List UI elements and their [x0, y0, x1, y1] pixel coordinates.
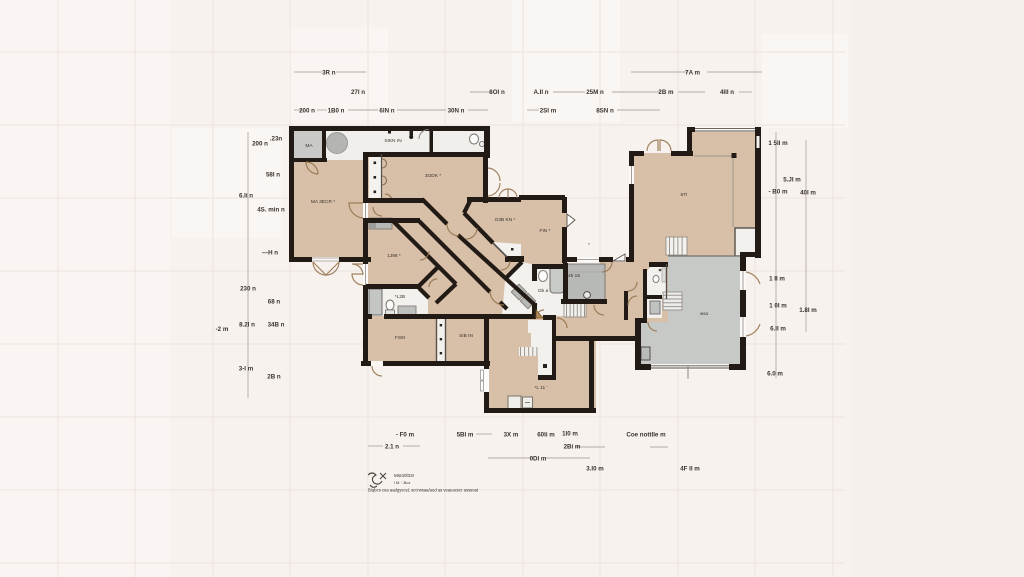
svg-text:2Bi m: 2Bi m	[564, 444, 581, 451]
svg-text:3.I0 m: 3.I0 m	[586, 466, 604, 473]
svg-text:2SI m: 2SI m	[540, 108, 557, 115]
svg-text:- B0 m: - B0 m	[769, 189, 788, 196]
svg-text:8OI n: 8OI n	[489, 89, 505, 96]
svg-text:68 n: 68 n	[268, 299, 281, 306]
svg-text:6.II m: 6.II m	[770, 326, 786, 333]
svg-text:45 15: 45 15	[568, 273, 580, 279]
svg-text:6.0 m: 6.0 m	[767, 371, 783, 378]
svg-text:SIKN IN: SIKN IN	[384, 138, 402, 144]
svg-text:A.II n: A.II n	[533, 89, 548, 96]
svg-text:MA: MA	[305, 143, 313, 149]
svg-text:2B n: 2B n	[267, 374, 281, 381]
svg-text:3R n: 3R n	[322, 70, 336, 77]
svg-text:8.2I n: 8.2I n	[239, 322, 255, 329]
svg-text:MA 3ECR *: MA 3ECR *	[311, 199, 335, 205]
svg-text:BIqbcs coa aadgyvcs1 sccrwsaa/: BIqbcs coa aadgyvcs1 sccrwsaa/aod as vea…	[368, 488, 479, 493]
svg-text:SIB IN: SIB IN	[459, 333, 473, 339]
svg-text:Mst40l33I: Mst40l33I	[394, 473, 414, 478]
svg-text:FS9I: FS9I	[395, 335, 405, 341]
svg-text:40I m: 40I m	[800, 190, 816, 197]
svg-text:6IN n: 6IN n	[379, 108, 394, 115]
svg-text:5.JI m: 5.JI m	[783, 177, 801, 184]
svg-text:*L2B: *L2B	[395, 294, 405, 300]
svg-text:1I0 m: 1I0 m	[562, 431, 578, 438]
svg-text:1 5II m: 1 5II m	[768, 140, 788, 147]
svg-text:1J98 *: 1J98 *	[387, 253, 401, 259]
svg-text:30N n: 30N n	[448, 108, 465, 115]
svg-text:0DI m: 0DI m	[530, 456, 547, 463]
svg-text:Coe nottIIe m: Coe nottIIe m	[626, 432, 666, 439]
svg-text:8SN n: 8SN n	[596, 108, 614, 115]
svg-text:Ob a: Ob a	[538, 288, 549, 294]
svg-text:6TI: 6TI	[681, 192, 688, 198]
svg-text:27I n: 27I n	[351, 89, 365, 96]
svg-text:25M n: 25M n	[586, 89, 604, 96]
svg-text:3ODK *: 3ODK *	[425, 173, 441, 179]
svg-text:O3B KN *: O3B KN *	[495, 217, 516, 223]
svg-text:60Ii m: 60Ii m	[537, 432, 555, 439]
svg-text:*: *	[588, 242, 590, 248]
svg-text:*L 11 ': *L 11 '	[535, 385, 548, 391]
svg-text:- F0 m: - F0 m	[396, 432, 415, 439]
svg-text:wsa: wsa	[700, 311, 708, 316]
svg-text:6.Ii n: 6.Ii n	[239, 193, 253, 200]
svg-text:200 n: 200 n	[299, 108, 315, 115]
svg-text:1 II m: 1 II m	[769, 276, 785, 283]
svg-text:58I n: 58I n	[266, 172, 280, 179]
svg-text:i M. '-Bcz: i M. '-Bcz	[394, 480, 410, 485]
svg-text:200 n: 200 n	[252, 141, 268, 148]
svg-text:230 n: 230 n	[240, 286, 256, 293]
svg-text:.23n: .23n	[270, 136, 283, 143]
svg-text:-2 m: -2 m	[216, 326, 229, 333]
svg-text:1.8I m: 1.8I m	[799, 307, 817, 314]
svg-text:34B n: 34B n	[268, 322, 285, 329]
svg-text:3X m: 3X m	[504, 432, 519, 439]
svg-text:4S. min n: 4S. min n	[257, 207, 285, 214]
svg-text:—H n: —H n	[262, 250, 278, 257]
svg-text:4F II m: 4F II m	[680, 466, 700, 473]
svg-text:2.1 n: 2.1 n	[385, 444, 399, 451]
svg-text:1 0I m: 1 0I m	[769, 303, 787, 310]
svg-text:2B m: 2B m	[658, 89, 674, 96]
svg-text:5BI m: 5BI m	[457, 432, 474, 439]
svg-text:7A m: 7A m	[685, 70, 700, 77]
svg-text:FIN *: FIN *	[540, 228, 551, 234]
svg-text:4III n: 4III n	[720, 89, 734, 96]
svg-text:1B0 n: 1B0 n	[328, 108, 345, 115]
svg-text:3-I m: 3-I m	[239, 366, 254, 373]
